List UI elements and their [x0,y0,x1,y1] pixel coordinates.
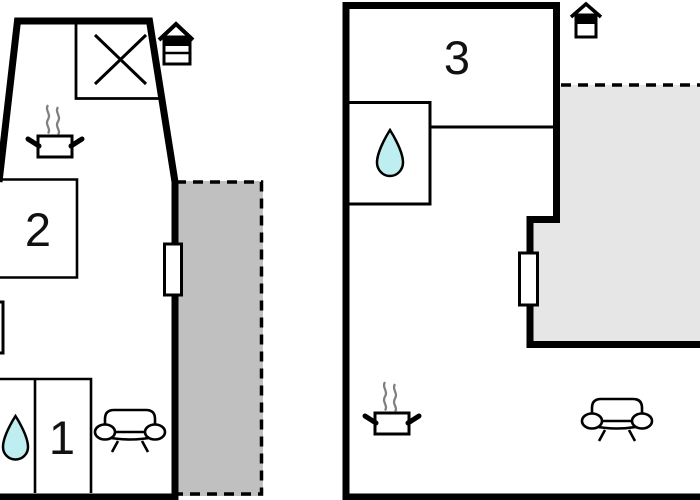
window [165,244,182,295]
entrance-icon [159,24,193,64]
sofa-icon [95,410,165,452]
window [0,302,3,353]
room-2-label: 2 [25,203,51,256]
water-drop-icon [3,416,28,460]
room-3-label: 3 [444,31,470,84]
stove-icon [365,382,419,434]
stove-icon [28,105,82,157]
water-drop-icon [377,130,403,176]
window [520,253,538,305]
floorplan-canvas: 2 1 [0,0,700,500]
room-1-label: 1 [49,411,75,464]
floorplan-right: 3 [290,0,700,500]
terrace-area [175,181,263,496]
floorplan-left: 2 1 [0,0,290,500]
sofa-icon [582,399,652,441]
entrance-icon [571,4,601,37]
